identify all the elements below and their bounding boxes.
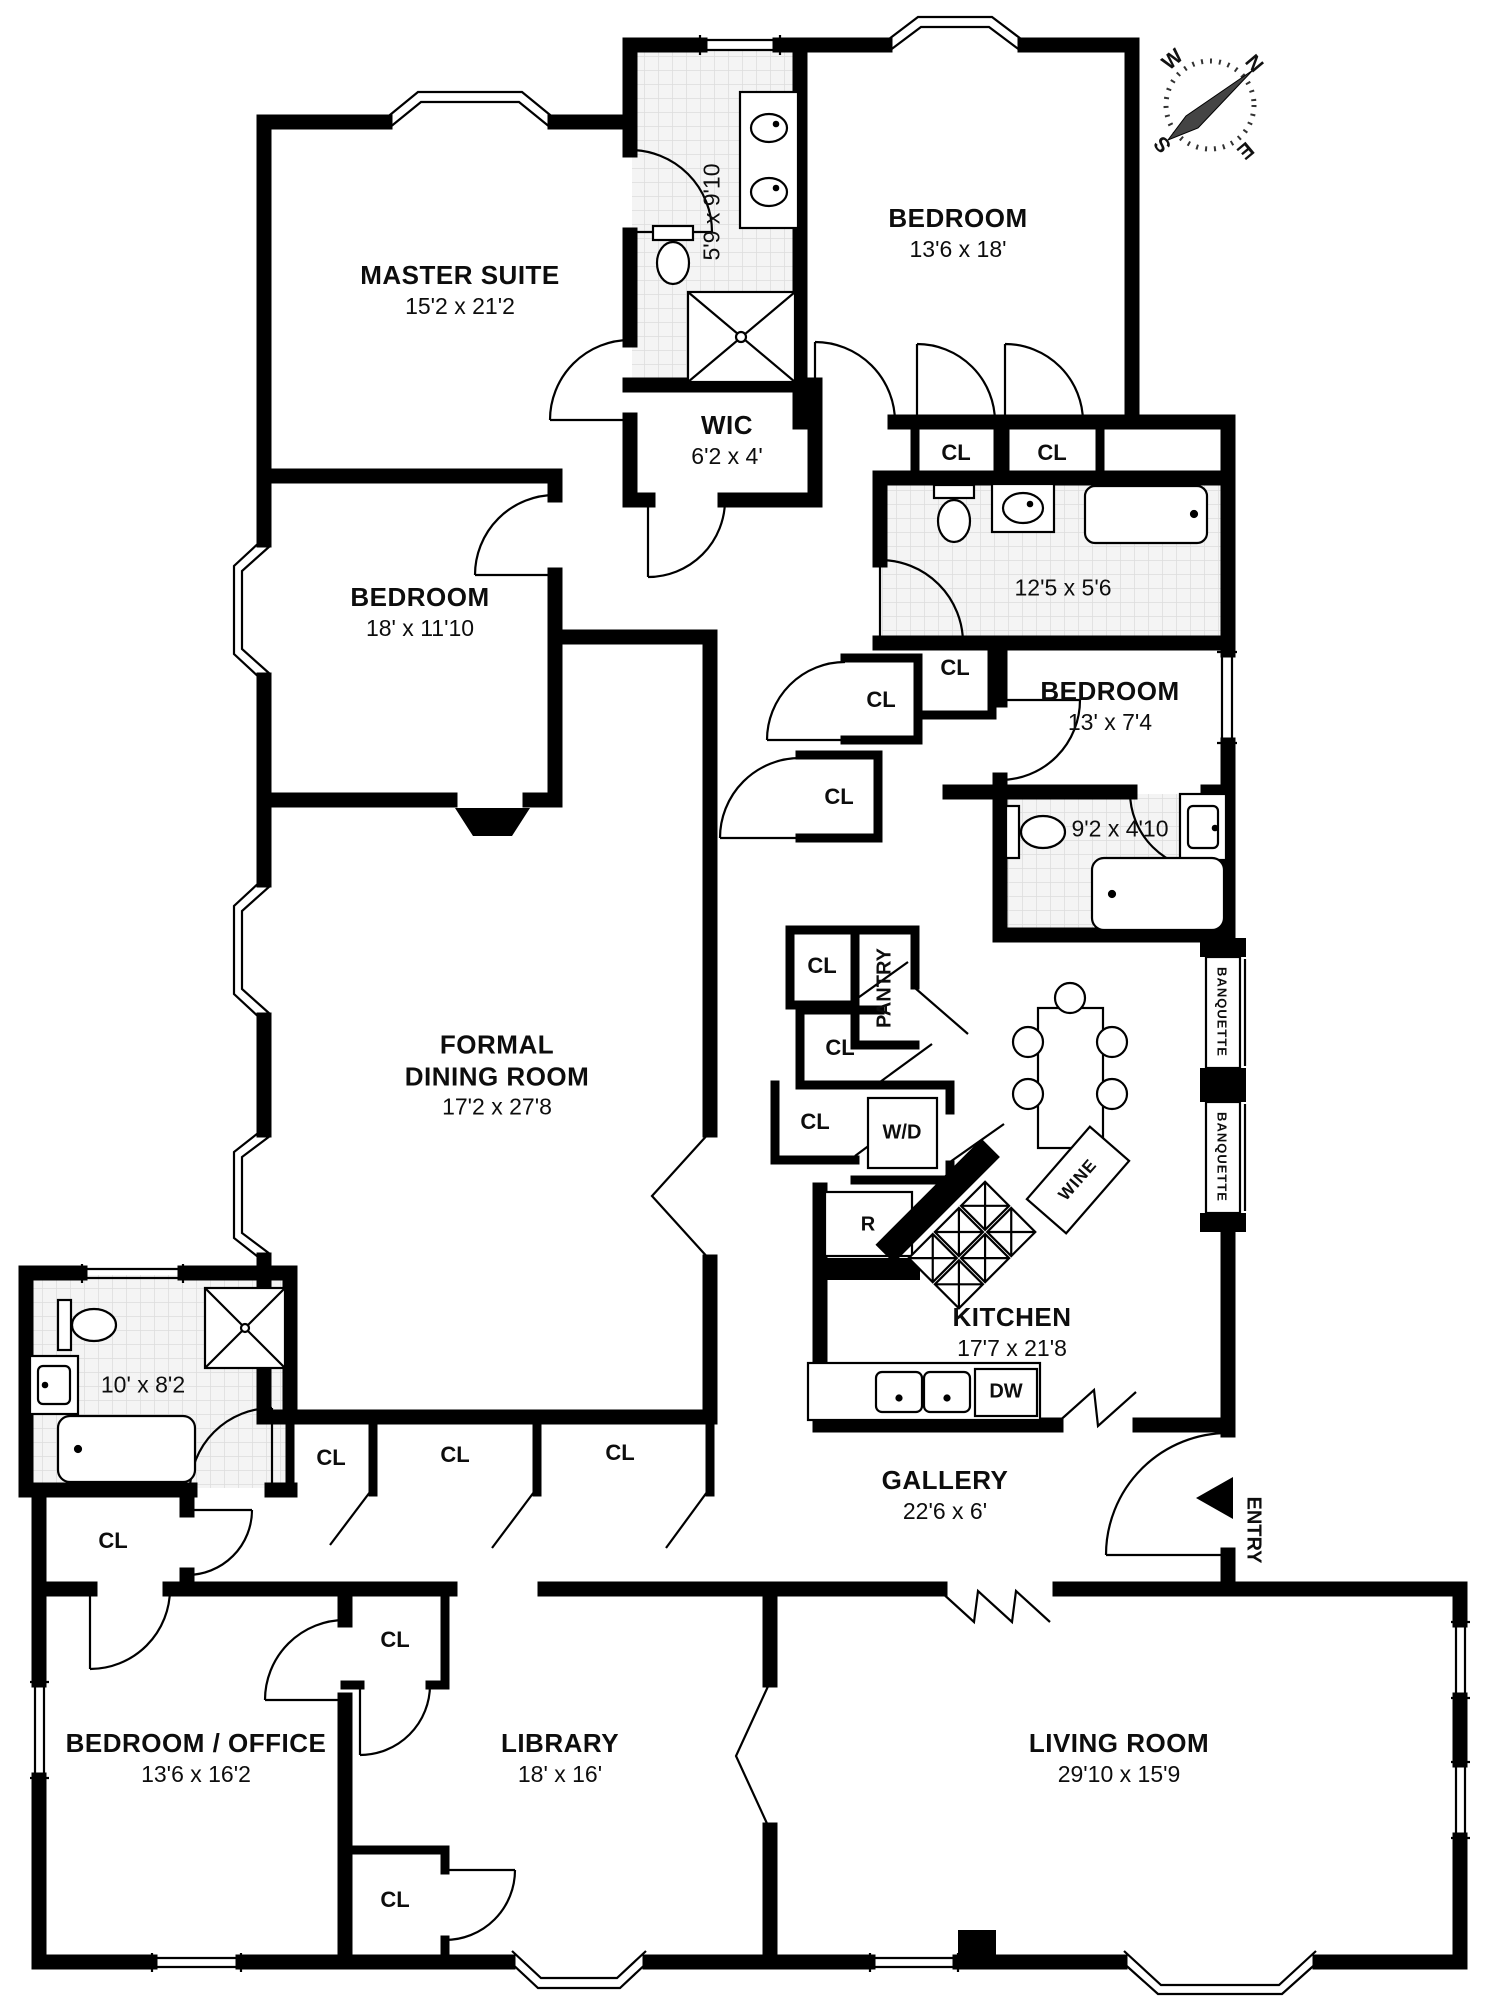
- closet-label: CL: [940, 655, 969, 681]
- closet-label: CL: [800, 1109, 829, 1135]
- closet-label: CL: [98, 1528, 127, 1554]
- room-label-wic: WIC 6'2 x 4': [691, 410, 762, 470]
- toilet-icon: [938, 500, 970, 542]
- sink-icon: [876, 1372, 922, 1412]
- sink-icon: [751, 114, 787, 142]
- floor-plan-drawing: [0, 0, 1500, 2000]
- toilet-tank: [934, 485, 974, 498]
- sink-icon: [1003, 493, 1043, 523]
- closet-label: CL: [866, 687, 895, 713]
- room-label-bedroom-small: BEDROOM 13' x 7'4: [1040, 676, 1179, 736]
- closet-label: CL: [824, 784, 853, 810]
- banquette-label: BANQUETTE: [1215, 967, 1230, 1057]
- toilet-icon: [72, 1309, 116, 1341]
- entry-label: ENTRY: [1242, 1496, 1265, 1563]
- closet-label: CL: [807, 953, 836, 979]
- sink-icon: [751, 178, 787, 206]
- room-label-kitchen: KITCHEN 17'7 x 21'8: [952, 1302, 1071, 1362]
- closet-label: CL: [941, 440, 970, 466]
- dishwasher-label: DW: [989, 1381, 1022, 1404]
- chair-icon: [1013, 1079, 1043, 1109]
- refrigerator-label: R: [861, 1214, 875, 1237]
- closet-label: CL: [316, 1445, 345, 1471]
- toilet-tank: [653, 226, 693, 240]
- toilet-icon: [657, 242, 689, 284]
- closet-label: CL: [440, 1442, 469, 1468]
- sink-icon: [924, 1372, 970, 1412]
- toilet-tank: [58, 1300, 71, 1350]
- room-label-bedroom-office: BEDROOM / OFFICE 13'6 x 16'2: [66, 1728, 327, 1788]
- room-label-master-suite: MASTER SUITE 15'2 x 21'2: [360, 260, 560, 320]
- toilet-tank: [1006, 806, 1019, 858]
- chair-icon: [1097, 1027, 1127, 1057]
- closet-label: CL: [1037, 440, 1066, 466]
- room-label-hall-bath: 12'5 x 5'6: [1014, 575, 1111, 602]
- compass-icon: [1166, 61, 1254, 149]
- room-label-bedroom-left: BEDROOM 18' x 11'10: [350, 582, 489, 642]
- room-label-small-bath: 9'2 x 4'10: [1071, 816, 1168, 843]
- closet-label: CL: [825, 1035, 854, 1061]
- vanity: [740, 92, 798, 228]
- room-label-gallery: GALLERY 22'6 x 6': [882, 1465, 1009, 1525]
- toilet-icon: [1021, 816, 1065, 848]
- closet-label: CL: [380, 1627, 409, 1653]
- bathtub-icon: [1085, 486, 1207, 543]
- entry-arrow-icon: [1196, 1477, 1233, 1519]
- room-label-living-room: LIVING ROOM 29'10 x 15'9: [1029, 1728, 1209, 1788]
- room-label-left-bath: 10' x 8'2: [101, 1372, 185, 1399]
- closet-label: CL: [380, 1887, 409, 1913]
- washer-dryer-label: W/D: [883, 1122, 922, 1145]
- banquette-label: BANQUETTE: [1215, 1112, 1230, 1202]
- chair-icon: [1013, 1027, 1043, 1057]
- room-label-formal-dining: FORMAL DINING ROOM 17'2 x 27'8: [405, 1029, 590, 1120]
- dining-table: [1038, 1008, 1103, 1148]
- room-label-master-bath: 5'9 x 9'10: [699, 163, 726, 260]
- room-label-bedroom-top: BEDROOM 13'6 x 18': [888, 203, 1027, 263]
- floor-plan: MASTER SUITE 15'2 x 21'2 BEDROOM 13'6 x …: [0, 0, 1500, 2000]
- room-label-library: LIBRARY 18' x 16': [501, 1728, 619, 1788]
- pantry-label: PANTRY: [874, 948, 897, 1028]
- chair-icon: [1055, 983, 1085, 1013]
- closet-label: CL: [605, 1440, 634, 1466]
- chair-icon: [1097, 1079, 1127, 1109]
